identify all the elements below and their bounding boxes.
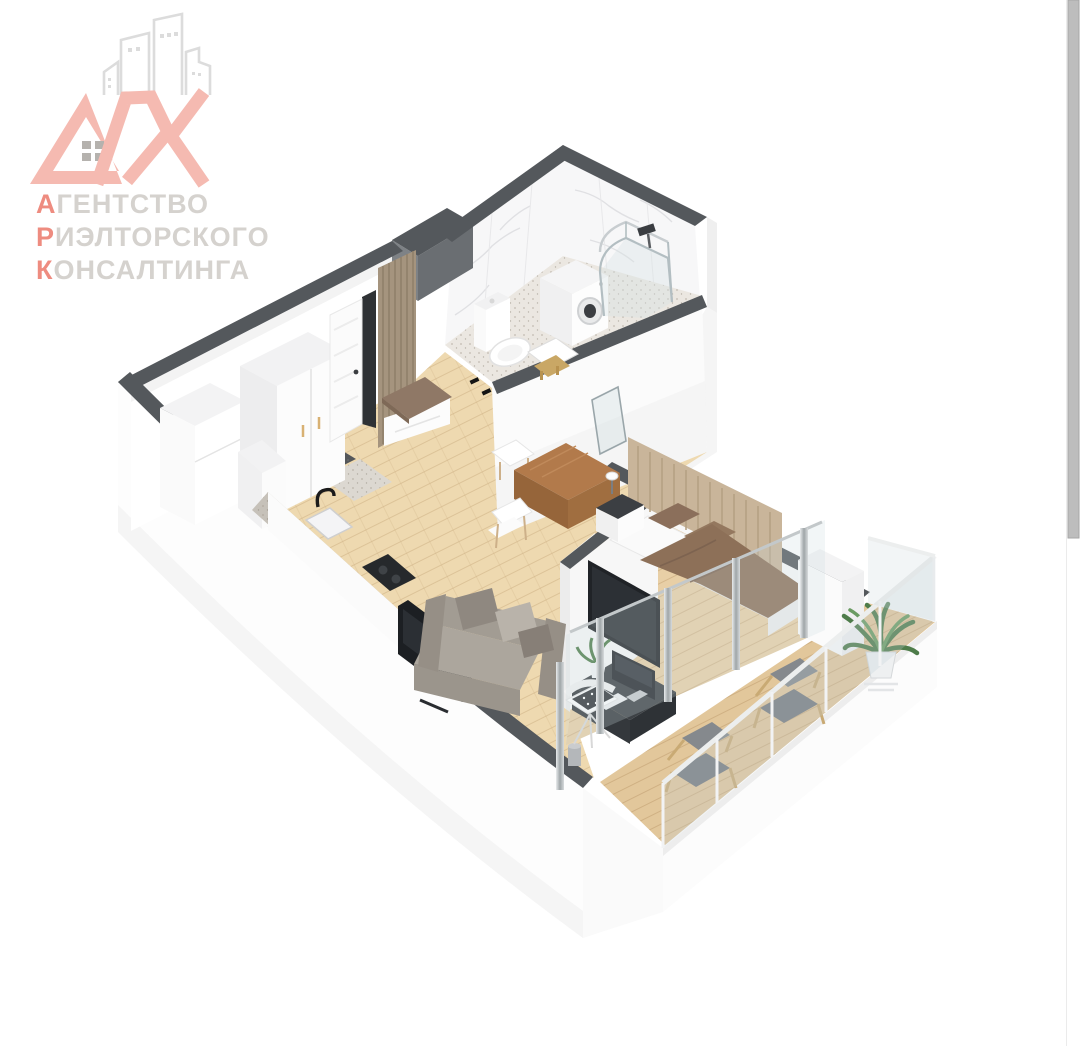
logo-line-3: КОНСАЛТИНГА xyxy=(36,255,250,285)
floor-plan-page: АГЕНТСТВО РИЭЛТОРСКОГО КОНСАЛТИНГА xyxy=(0,0,1080,1046)
buildings-skyline-icon xyxy=(104,14,210,95)
trash-bin-icon xyxy=(568,743,581,766)
washing-machine-icon xyxy=(540,260,608,346)
logo-mark xyxy=(30,92,204,184)
logo-letter-k-icon xyxy=(171,92,204,184)
logo-line-2: РИЭЛТОРСКОГО xyxy=(36,222,270,252)
fridge-icon xyxy=(160,383,245,525)
agency-logo: АГЕНТСТВО РИЭЛТОРСКОГО КОНСАЛТИНГА xyxy=(30,14,270,285)
logo-letter-p-icon xyxy=(97,97,168,184)
scrollbar-thumb[interactable] xyxy=(1068,0,1079,538)
entrance-door-icon xyxy=(330,290,376,442)
logo-line-1: АГЕНТСТВО xyxy=(36,189,209,219)
scrollbar xyxy=(1066,0,1080,1046)
